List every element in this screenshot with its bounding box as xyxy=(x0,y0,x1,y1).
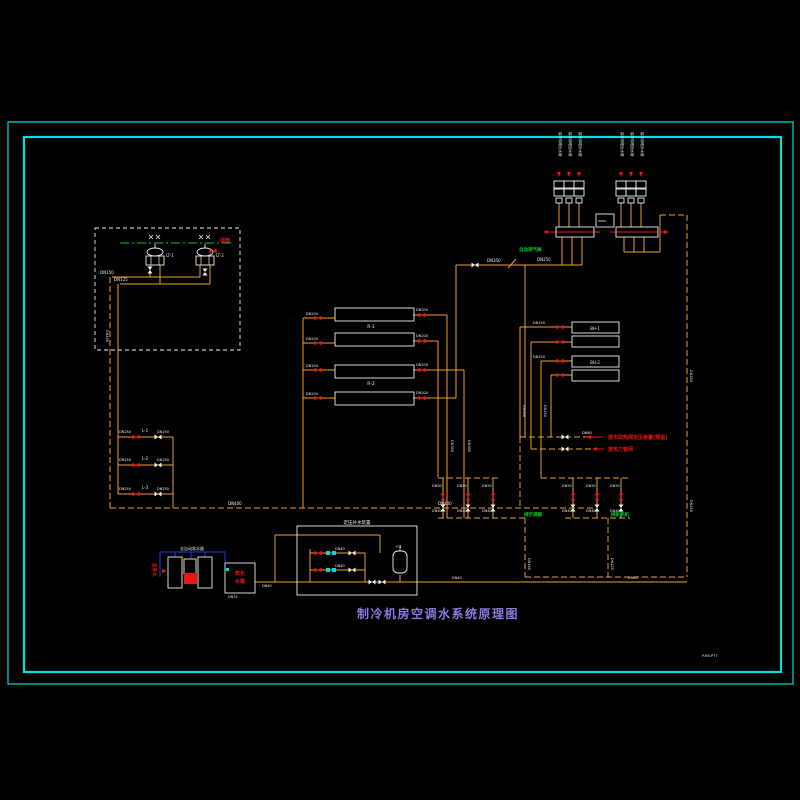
chiller-1-tag: R-1 xyxy=(367,324,375,330)
pressurization-unit-box xyxy=(297,526,417,595)
tower-pipe-note: 接冷却塔出水管 xyxy=(558,132,563,157)
valve-icon xyxy=(318,341,322,346)
pipe-label: DN50 xyxy=(432,484,442,488)
valve-icon xyxy=(133,492,137,497)
valve-icon xyxy=(155,492,159,497)
pipe-label: DN400 xyxy=(105,330,109,342)
valve-icon xyxy=(422,368,426,373)
salt-tank xyxy=(184,573,197,584)
valve-icon xyxy=(419,339,423,344)
valve-icon xyxy=(379,580,383,585)
makeup-pump-2 xyxy=(326,568,330,572)
pipe-label: DN80 xyxy=(582,431,592,435)
valve-icon xyxy=(203,272,208,276)
pipe-label: DN50 xyxy=(562,484,572,488)
valve-icon xyxy=(158,492,162,497)
valve-icon xyxy=(349,568,353,573)
valve-icon xyxy=(619,505,624,509)
softener-tank-1 xyxy=(168,557,182,588)
corner-mark: P.M5.P77 xyxy=(702,654,718,658)
tower-pipe-note: 接冷却塔回水管 xyxy=(568,132,573,157)
valve-icon xyxy=(315,368,319,373)
tag-box xyxy=(564,189,574,196)
pipe-label: DN32 xyxy=(228,595,238,599)
valve-box xyxy=(556,198,562,203)
roof-cooling-tower-zone xyxy=(95,228,240,350)
tag-box xyxy=(574,181,584,188)
pressurization-unit-title: 定压补水装置 xyxy=(344,519,371,526)
valve-icon xyxy=(318,368,322,373)
pipe-label: DN150 xyxy=(533,355,545,359)
tower-pipe-note: 接冷却塔出水管 xyxy=(620,132,625,157)
pipe-label: DN250 xyxy=(543,405,547,417)
valve-icon xyxy=(619,497,624,501)
pipe-label: DN400 xyxy=(438,501,452,506)
valve-icon xyxy=(422,396,426,401)
valve-icon xyxy=(155,463,159,468)
valve-icon xyxy=(136,463,140,468)
pump-tag: L-2 xyxy=(142,456,149,461)
chiller-R1-bottom xyxy=(335,333,414,346)
valve-icon xyxy=(419,396,423,401)
softener-column xyxy=(184,559,196,574)
pipe-label: DN50 xyxy=(598,219,606,223)
makeup-pump-2 xyxy=(332,568,336,572)
pipe-label: DN400 xyxy=(228,501,242,506)
valve-icon xyxy=(148,270,153,274)
valve-icon xyxy=(560,340,564,345)
cooling-tower-1-tag: LT-1 xyxy=(166,253,174,258)
tower-pipe-note: 接冷却塔补水管 xyxy=(578,132,583,157)
pipe-label: DN350 xyxy=(450,440,454,452)
pipe-label: DN350 xyxy=(487,258,501,263)
valve-icon xyxy=(422,339,426,344)
flow-arrow-icon xyxy=(577,172,581,177)
valve-icon xyxy=(203,269,208,273)
valve-icon xyxy=(560,325,564,330)
soft-water-tank-label: 水箱 xyxy=(234,578,245,585)
air-vent-label: 自动排气阀 xyxy=(519,246,542,253)
valve-icon xyxy=(619,494,624,498)
pipe-label: DN250 xyxy=(119,487,131,491)
valve-icon xyxy=(466,497,471,501)
pipe-label: DN250 xyxy=(157,430,169,434)
valve-icon xyxy=(441,497,446,501)
pipe-solid xyxy=(508,259,516,268)
tag-box xyxy=(554,181,564,188)
tower-pipe-note: 接冷却塔补水管 xyxy=(640,132,645,157)
pipe-label: DN125 xyxy=(610,558,614,570)
valve-icon xyxy=(571,505,576,509)
tag-box xyxy=(636,189,646,196)
valve-icon xyxy=(315,316,319,321)
pipe-label: DN50 xyxy=(610,484,620,488)
cooling-tower-2-tag: LT-2 xyxy=(216,253,224,258)
pump-tag: L-1 xyxy=(142,428,149,433)
flow-arrow-icon xyxy=(162,569,167,573)
valve-icon xyxy=(595,494,600,498)
valve-box xyxy=(618,198,624,203)
valve-icon xyxy=(372,580,376,585)
valve-icon xyxy=(565,435,569,440)
valve-box xyxy=(576,198,582,203)
pipe-label: DN200 xyxy=(416,363,428,367)
chiller-R2-bottom xyxy=(335,392,414,405)
valve-icon xyxy=(491,497,496,501)
reserved-connection-note: 接市政热网定压装置(预留) xyxy=(607,434,668,441)
level-gauge xyxy=(226,568,229,571)
valve-icon xyxy=(369,580,373,585)
valve-icon xyxy=(466,494,471,498)
pressure-tank xyxy=(393,551,407,573)
tag-box xyxy=(636,181,646,188)
pipe-label: DN40 xyxy=(628,576,638,580)
pipe-label: DN40 xyxy=(482,509,492,513)
border-frame xyxy=(8,122,793,684)
pressure-tank-tag: P-1 xyxy=(396,545,402,549)
valve-icon xyxy=(419,313,423,318)
valve-icon xyxy=(491,494,496,498)
tag-box xyxy=(626,181,636,188)
chiller-R1-top xyxy=(335,308,414,321)
valve-icon xyxy=(557,359,561,364)
valve-icon xyxy=(318,316,322,321)
heating-network-note: 接热力管网 xyxy=(607,446,633,453)
valve-icon xyxy=(562,447,566,452)
valve-icon xyxy=(318,568,322,573)
pipe-label: DN250 xyxy=(157,487,169,491)
valve-icon xyxy=(595,505,600,509)
flow-arrow-icon xyxy=(629,172,633,177)
pump-tag: L-3 xyxy=(142,485,149,490)
tap-water-label: 自来水 xyxy=(151,563,158,577)
tag-box xyxy=(626,189,636,196)
soft-water-tank-label: 软化 xyxy=(235,570,245,577)
pipe-label: DN200 xyxy=(416,391,428,395)
flow-arrow-icon xyxy=(592,447,597,451)
pipe-label: DN200 xyxy=(306,364,318,368)
valve-icon xyxy=(136,435,140,440)
valve-icon xyxy=(560,373,564,378)
pipe-label: DN200 xyxy=(306,337,318,341)
valve-icon xyxy=(315,341,319,346)
valve-icon xyxy=(133,435,137,440)
pipe-label: DN300 xyxy=(467,440,471,452)
valve-icon xyxy=(466,505,471,509)
pipe-label: DN40 xyxy=(586,509,596,513)
pipe-label: DN50 xyxy=(482,484,492,488)
pipe-label: DN40 xyxy=(457,509,467,513)
valve-box xyxy=(566,198,572,203)
heat-exchanger-BH1-bottom xyxy=(572,336,619,347)
valve-icon xyxy=(441,494,446,498)
heat-exchanger-2-tag: BH-2 xyxy=(590,360,600,365)
valve-box xyxy=(628,198,634,203)
pipe-label: DN200 xyxy=(416,334,428,338)
pipe-label: DN300 xyxy=(522,405,526,417)
pipe-label: DN40 xyxy=(262,584,272,588)
pipe-label: DN250 xyxy=(157,458,169,462)
pipe-label: DN150 xyxy=(527,558,531,570)
pipe-label: DN50 xyxy=(457,484,467,488)
pipe-label: DN40 xyxy=(452,576,462,580)
valve-icon xyxy=(155,435,159,440)
chiller-2-tag: R-2 xyxy=(367,381,375,387)
valve-icon xyxy=(158,435,162,440)
cooling-tower-body xyxy=(196,256,214,265)
valve-icon xyxy=(148,267,153,271)
soft-water-tank xyxy=(225,563,255,593)
pipe-label: DN250 xyxy=(689,370,693,382)
tag-box xyxy=(554,189,564,196)
valve-icon xyxy=(318,551,322,556)
tower-pipe-note: 接冷却塔回水管 xyxy=(630,132,635,157)
valve-icon xyxy=(133,463,137,468)
heat-exchanger-1-tag: BH-1 xyxy=(590,326,600,331)
pipe-label: DN50 xyxy=(586,484,596,488)
pipe-label: DN200 xyxy=(306,392,318,396)
valve-icon xyxy=(318,396,322,401)
valve-icon xyxy=(158,463,162,468)
softener-tank-2 xyxy=(198,557,212,588)
valve-icon xyxy=(315,396,319,401)
valve-box xyxy=(638,198,644,203)
tag-box xyxy=(564,181,574,188)
flow-arrow-icon xyxy=(619,172,623,177)
pipe-label: DN250 xyxy=(537,257,551,262)
heat-exchanger-BH2-bottom xyxy=(572,370,619,381)
ahu-connection-label: 接空调箱 xyxy=(524,511,542,518)
valve-icon xyxy=(557,325,561,330)
valve-icon xyxy=(565,447,569,452)
drawing-title: 制冷机房空调水系统原理图 xyxy=(338,605,538,622)
chiller-R2-top xyxy=(335,365,414,378)
pipe-label: DN40 xyxy=(335,547,345,551)
flow-arrow-icon xyxy=(664,230,669,234)
pipe-label: DN40 xyxy=(562,509,572,513)
valve-icon xyxy=(315,568,319,573)
flow-arrow-icon xyxy=(586,435,591,439)
pipe-label: DN200 xyxy=(416,308,428,312)
cad-canvas: DN150DN125LT-1LT-2屋面L-1L-2L-3DN250DN250D… xyxy=(0,0,800,800)
valve-icon xyxy=(571,497,576,501)
valve-icon xyxy=(422,313,426,318)
valve-icon xyxy=(352,568,356,573)
pipe-label: DN250 xyxy=(119,430,131,434)
pipe-label: DN40 xyxy=(335,564,345,568)
valve-icon xyxy=(472,263,476,268)
valve-icon xyxy=(491,505,496,509)
valve-icon xyxy=(382,580,386,585)
pipe-label: DN200 xyxy=(306,312,318,316)
pipe-label: DN250 xyxy=(689,500,693,512)
tag-box xyxy=(616,181,626,188)
valve-icon xyxy=(349,551,353,556)
valve-icon xyxy=(595,497,600,501)
valve-icon xyxy=(352,551,356,556)
valve-icon xyxy=(557,373,561,378)
pipe-label: DN150 xyxy=(533,321,545,325)
pipe-label: DN125 xyxy=(114,277,128,282)
makeup-pump-1 xyxy=(332,551,336,555)
valve-icon xyxy=(419,368,423,373)
tag-box xyxy=(616,189,626,196)
flow-arrow-icon xyxy=(639,172,643,177)
border-frame xyxy=(24,137,781,672)
makeup-pump-1 xyxy=(326,551,330,555)
fresh-air-connection-label: 接新风机 xyxy=(611,511,629,518)
valve-icon xyxy=(562,435,566,440)
valve-icon xyxy=(571,494,576,498)
valve-icon xyxy=(560,359,564,364)
valve-icon xyxy=(475,263,479,268)
valve-icon xyxy=(136,492,140,497)
pipe-label: DN250 xyxy=(119,458,131,462)
flow-arrow-icon xyxy=(567,172,571,177)
roof-label: 屋面 xyxy=(220,237,230,244)
pipe-label: DN40 xyxy=(432,509,442,513)
cooling-tower-body xyxy=(146,256,164,265)
valve-icon xyxy=(557,340,561,345)
cooling-tower-top xyxy=(147,248,163,256)
softener-title: 全自动软水器 xyxy=(180,545,204,551)
valve-icon xyxy=(315,551,319,556)
tag-box xyxy=(574,189,584,196)
flow-arrow-icon xyxy=(557,172,561,177)
flow-arrow-icon xyxy=(543,230,548,234)
pipe-label: DN150 xyxy=(100,270,114,275)
